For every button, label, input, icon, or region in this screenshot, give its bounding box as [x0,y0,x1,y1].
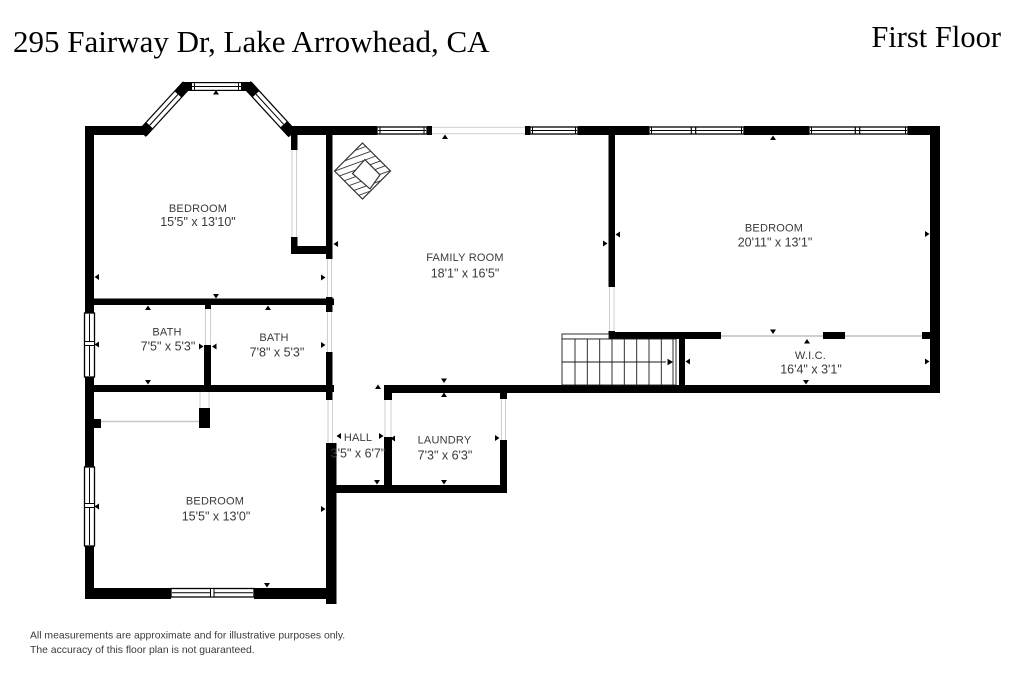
svg-text:BATH: BATH [152,327,181,339]
svg-text:BEDROOM: BEDROOM [745,223,803,235]
svg-text:18'1" x 16'5": 18'1" x 16'5" [431,267,500,281]
svg-text:295 Fairway Dr, Lake Arrowhead: 295 Fairway Dr, Lake Arrowhead, CA [13,24,490,59]
svg-text:BEDROOM: BEDROOM [186,496,244,508]
svg-text:LAUNDRY: LAUNDRY [418,435,472,447]
svg-text:3'5" x 6'7": 3'5" x 6'7" [331,447,386,461]
svg-text:FAMILY ROOM: FAMILY ROOM [426,252,504,264]
svg-text:BEDROOM: BEDROOM [169,203,227,215]
svg-text:First Floor: First Floor [871,20,1001,54]
svg-text:All measurements are approxima: All measurements are approximate and for… [30,631,345,642]
svg-text:15'5" x 13'10": 15'5" x 13'10" [160,215,236,229]
svg-text:20'11" x 13'1": 20'11" x 13'1" [738,236,813,250]
svg-text:HALL: HALL [344,432,372,444]
svg-text:16'4" x 3'1": 16'4" x 3'1" [780,363,842,377]
svg-text:7'8" x 5'3": 7'8" x 5'3" [250,346,305,360]
svg-text:15'5" x 13'0": 15'5" x 13'0" [182,510,251,524]
svg-text:W.I.C.: W.I.C. [795,350,826,362]
svg-text:BATH: BATH [259,332,288,344]
svg-text:7'5" x 5'3": 7'5" x 5'3" [141,340,196,354]
svg-text:The accuracy of this floor pla: The accuracy of this floor plan is not g… [30,645,255,656]
svg-text:7'3" x 6'3": 7'3" x 6'3" [418,449,473,463]
